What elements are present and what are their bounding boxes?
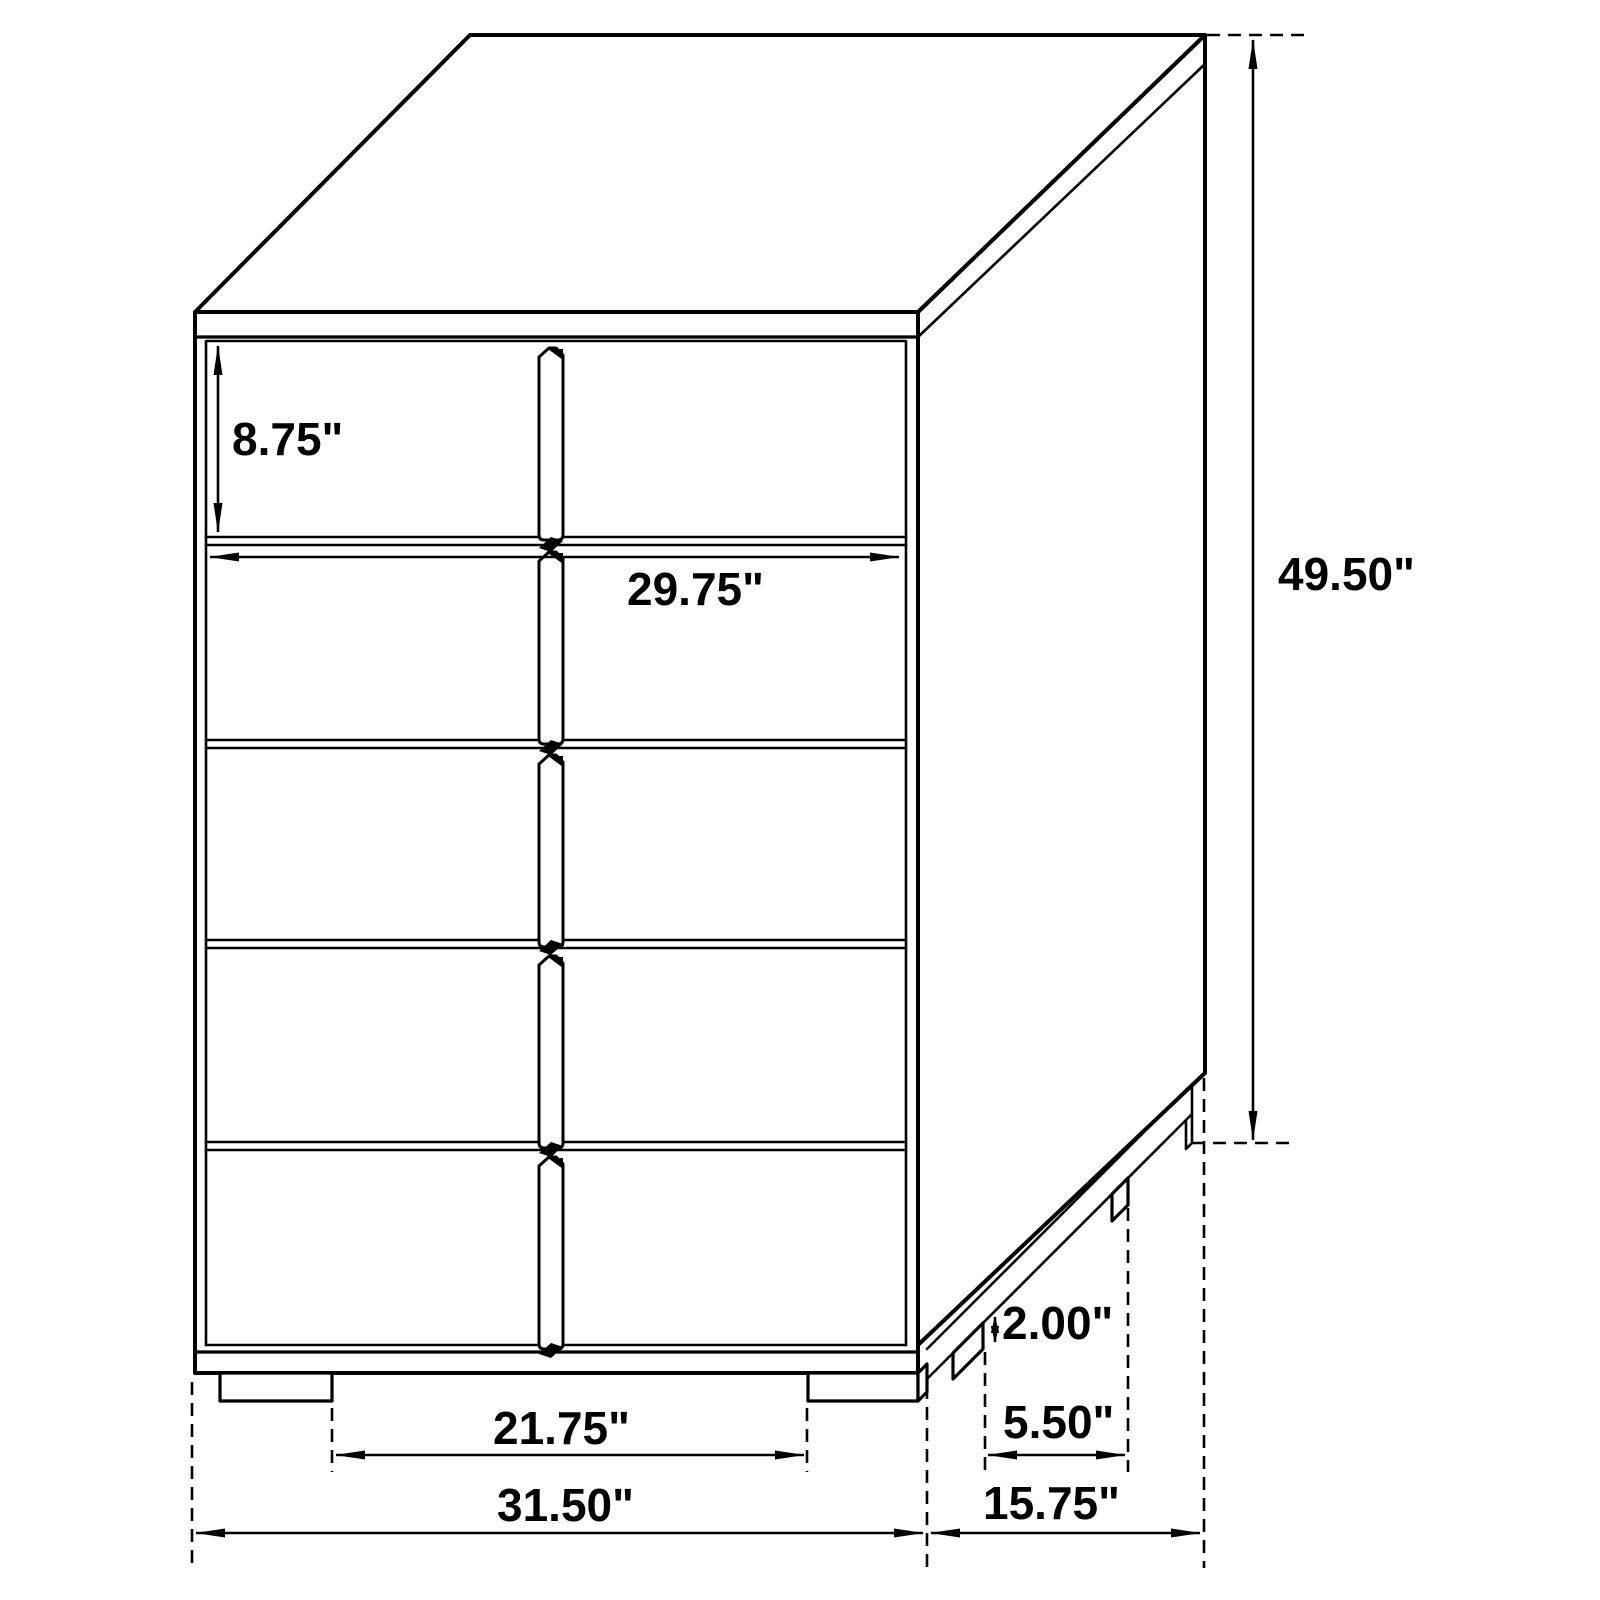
- chest-outline: [195, 35, 1205, 1401]
- label-side-leg-spacing: 5.50": [1003, 1396, 1114, 1448]
- label-overall-depth: 15.75": [983, 1477, 1120, 1529]
- drawer-handles: [539, 348, 563, 1358]
- drawer-handle: [539, 755, 563, 947]
- label-drawer-height: 8.75": [232, 413, 343, 465]
- front-left-leg: [220, 1373, 332, 1401]
- side-leg-back: [1112, 1178, 1128, 1221]
- label-overall-width: 31.50": [497, 1479, 634, 1531]
- label-front-leg-spacing: 21.75": [493, 1402, 630, 1454]
- drawer-handle: [539, 552, 563, 744]
- drawer-handle: [539, 956, 563, 1148]
- chest-dimension-diagram: 8.75" 29.75" 49.50" 2.00" 5.50" 21.75" 3…: [0, 0, 1600, 1600]
- front-right-leg-side-facet: [918, 1364, 927, 1401]
- drawer-handle: [539, 1157, 563, 1349]
- drawing-canvas: 8.75" 29.75" 49.50" 2.00" 5.50" 21.75" 3…: [0, 0, 1600, 1600]
- label-overall-height: 49.50": [1278, 548, 1415, 600]
- front-right-leg: [808, 1373, 918, 1401]
- side-leg-front: [953, 1323, 983, 1379]
- label-drawer-width: 29.75": [627, 563, 764, 615]
- label-leg-height: 2.00": [1002, 1297, 1113, 1349]
- drawer-handle: [539, 348, 563, 540]
